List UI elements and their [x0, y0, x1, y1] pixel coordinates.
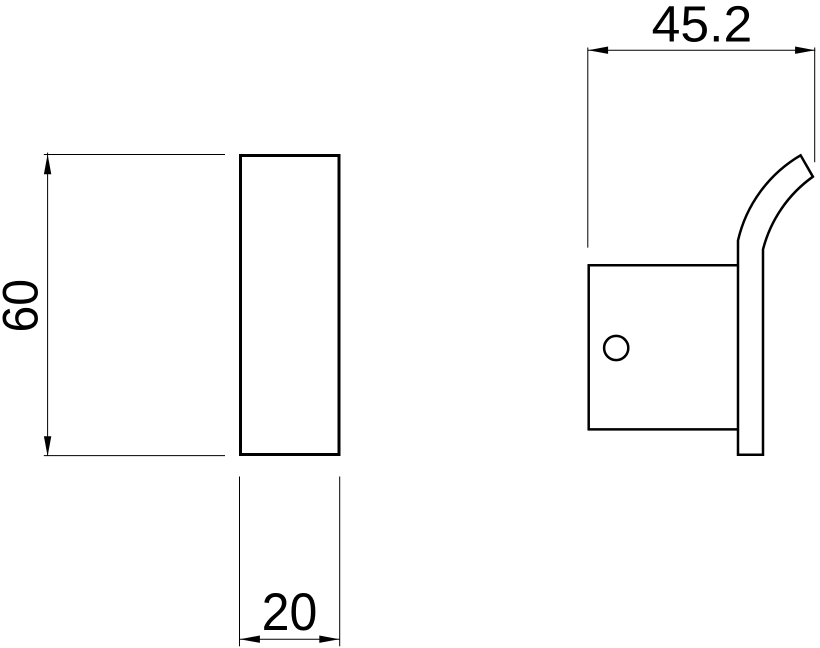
- svg-text:60: 60: [0, 279, 49, 333]
- svg-text:45.2: 45.2: [652, 0, 753, 53]
- svg-text:20: 20: [262, 583, 318, 642]
